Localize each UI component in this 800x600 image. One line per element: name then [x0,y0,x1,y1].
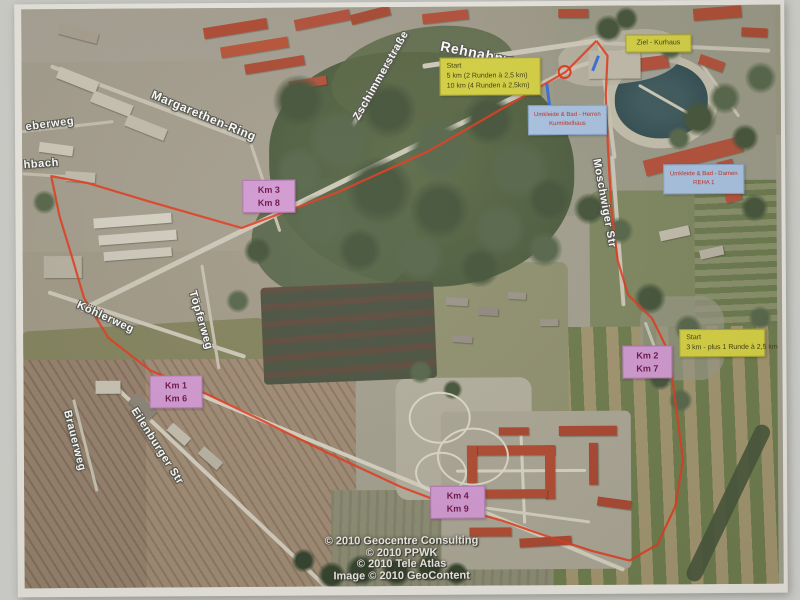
building [558,9,588,18]
km-marker-1-line: Km 8 [243,197,294,210]
start-marker-main: Start5 km (2 Runden à 2,5 km)10 km (4 Ru… [440,57,541,96]
km-marker-3-line: Km 7 [623,362,671,375]
aerial-map: RehnahnwegZschimmerstraßeMargarethen-Rin… [21,5,784,589]
tree-canopy [527,177,571,221]
tree-canopy [667,126,691,150]
tree-canopy [293,194,345,246]
building [478,307,498,316]
tree-canopy [407,118,471,182]
tree-canopy [614,7,638,31]
tree-canopy [669,388,693,412]
km-marker-1: Km 3Km 8 [242,180,295,213]
facility-info-box-2: Umkleide & Bad - DamenREHA 1 [663,164,744,194]
km-marker-3-line: Km 2 [623,349,671,362]
facility-info-box-1-line: Kurmittelhaus [529,120,606,129]
building [588,51,640,79]
ziel-marker: Ziel - Kurhaus [625,34,691,52]
building [499,427,529,435]
start-marker-3km: Start3 km - plus 1 Runde à 2,5 km [679,329,765,358]
tree-canopy [244,237,272,265]
building [485,489,547,498]
map-attribution: © 2010 Geocentre Consulting© 2010 PPWK© … [301,535,501,586]
tree-canopy [748,306,772,330]
facility-info-box-1-line: Umkleide & Bad - Herren [529,111,606,120]
facility-info-box-1: Umkleide & Bad - HerrenKurmittelhaus [528,105,607,135]
building [44,256,82,278]
attribution-line: Image © 2010 GeoContent [302,570,502,583]
tree-canopy [731,124,759,152]
km-marker-4: Km 4Km 9 [430,485,485,518]
km-marker-3: Km 2Km 7 [622,345,672,378]
tree-canopy [460,247,500,287]
km-marker-2: Km 1Km 6 [149,375,202,408]
tree-canopy [226,289,250,313]
building [559,426,617,436]
tree-canopy [32,190,56,214]
tree-canopy [338,228,382,272]
tree-canopy [408,360,432,384]
tree-canopy [634,282,666,314]
building [589,443,598,485]
tree-canopy [740,194,768,222]
km-marker-2-line: Km 6 [151,392,202,405]
km-marker-4-line: Km 4 [431,489,484,502]
start-marker-main-line: Start [447,61,534,72]
building [95,381,120,394]
km-marker-1-line: Km 3 [243,184,294,197]
map-paper-sheet: RehnahnwegZschimmerstraßeMargarethen-Rin… [14,0,788,597]
building [65,171,96,183]
tree-canopy [527,231,563,267]
building [540,319,558,326]
tree-canopy [396,234,444,282]
start-marker-3km-line: 3 km - plus 1 Runde à 2,5 km [686,343,758,353]
start-marker-3km-line: Start [686,333,758,343]
km-marker-2-line: Km 1 [150,379,201,392]
tree-canopy [409,180,469,240]
start-marker-main-line: 5 km (2 Runden à 2,5 km) [447,71,534,82]
start-marker-main-line: 10 km (4 Runden à 2,5km) [447,81,534,92]
building [741,27,767,37]
facility-info-box-2-line: Umkleide & Bad - Damen [664,170,743,179]
tree-canopy [345,156,413,224]
facility-info-box-2-line: REHA 1 [664,179,743,188]
building [452,335,472,343]
tree-canopy [745,62,777,94]
tree-canopy [709,82,741,114]
ziel-marker-line: Ziel - Kurhaus [632,38,684,48]
building [508,292,526,300]
building [446,297,468,306]
km-marker-4-line: Km 9 [431,502,484,515]
tree-canopy [463,93,515,145]
